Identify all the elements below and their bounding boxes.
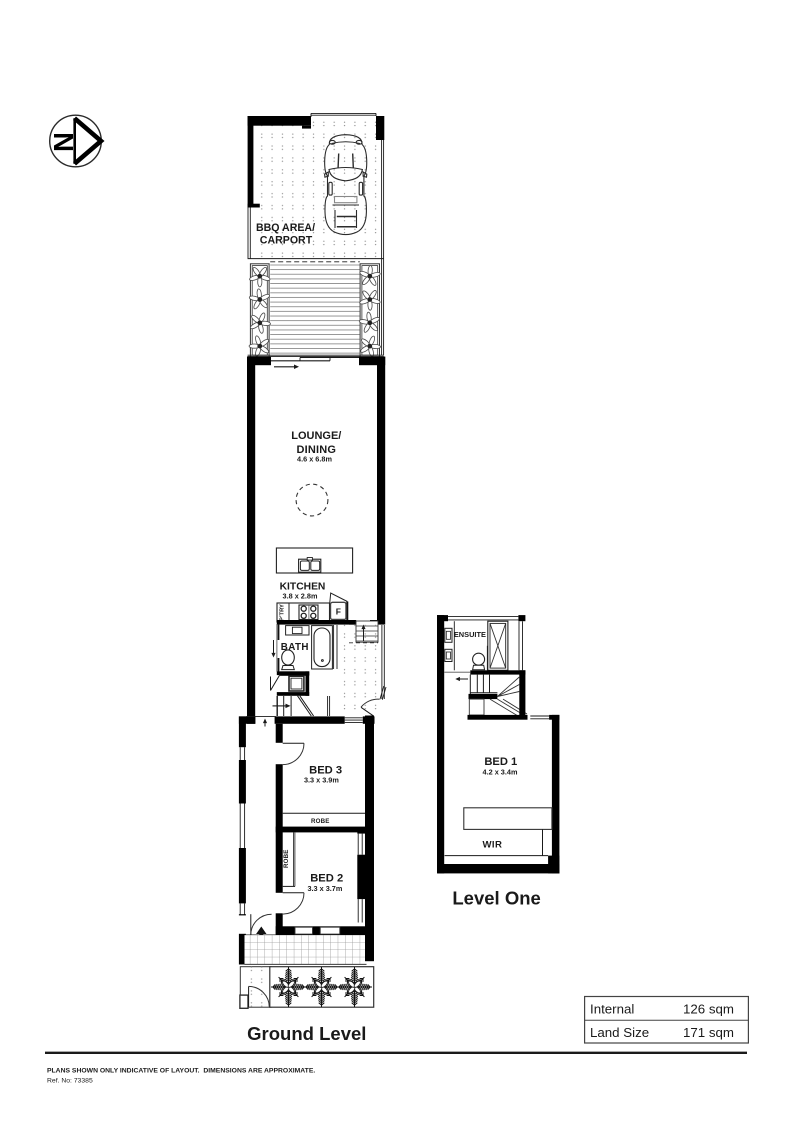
svg-text:ROBE: ROBE [311, 818, 330, 825]
svg-text:Land Size: Land Size [590, 1025, 649, 1040]
svg-text:N: N [48, 132, 79, 152]
svg-text:BED 3: BED 3 [309, 764, 342, 776]
svg-text:3.3 x 3.9m: 3.3 x 3.9m [304, 776, 339, 785]
svg-text:Internal: Internal [590, 1002, 634, 1017]
svg-text:3.8 x 2.8m: 3.8 x 2.8m [283, 591, 318, 600]
svg-text:4.2 x 3.4m: 4.2 x 3.4m [483, 767, 518, 776]
svg-text:Ref. No: 73385: Ref. No: 73385 [47, 1077, 93, 1084]
svg-text:PLANS SHOWN ONLY INDICATIVE OF: PLANS SHOWN ONLY INDICATIVE OF LAYOUT. D… [47, 1067, 315, 1074]
svg-text:126 sqm: 126 sqm [683, 1002, 734, 1017]
svg-text:P’TRY: P’TRY [280, 604, 286, 621]
svg-text:F: F [336, 607, 341, 617]
svg-text:3.3 x 3.7m: 3.3 x 3.7m [307, 884, 342, 893]
svg-text:171 sqm: 171 sqm [683, 1025, 734, 1040]
svg-text:ROBE: ROBE [283, 849, 290, 868]
svg-text:ENSUITE: ENSUITE [454, 630, 486, 639]
svg-text:BED 1: BED 1 [484, 756, 517, 768]
svg-text:Ground Level: Ground Level [247, 1023, 366, 1044]
svg-text:4.6 x 6.8m: 4.6 x 6.8m [297, 454, 332, 463]
svg-text:WIR: WIR [482, 840, 502, 851]
svg-text:CARPORT: CARPORT [260, 235, 313, 247]
svg-text:Level One: Level One [452, 888, 540, 909]
svg-text:LOUNGE/: LOUNGE/ [291, 430, 341, 442]
svg-text:BED 2: BED 2 [310, 873, 343, 885]
svg-text:BBQ AREA/: BBQ AREA/ [256, 222, 315, 234]
